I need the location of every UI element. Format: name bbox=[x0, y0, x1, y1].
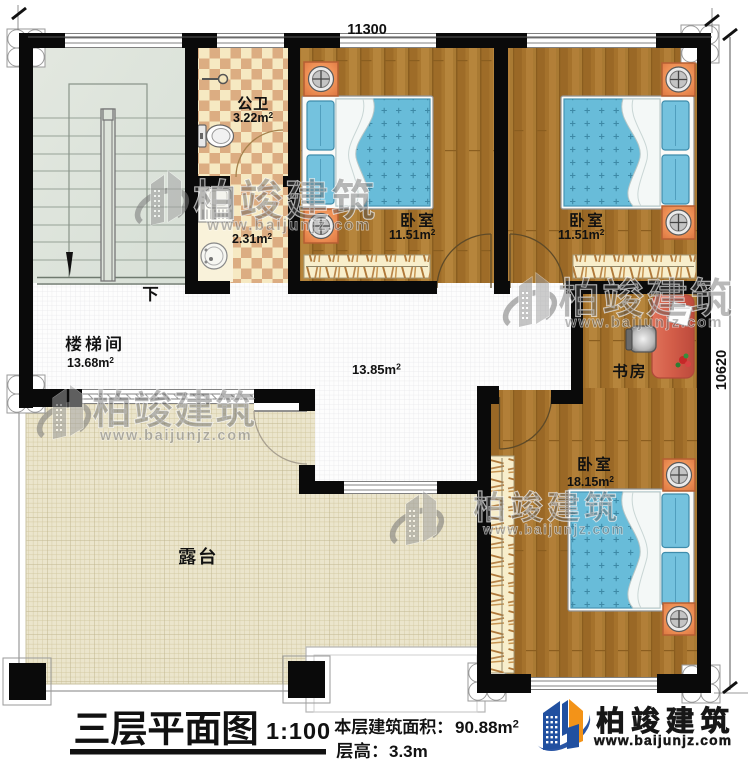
svg-text:13.68m2: 13.68m2 bbox=[67, 356, 114, 370]
svg-text:www.baijunjz.com: www.baijunjz.com bbox=[206, 217, 371, 234]
svg-text:11.51m2: 11.51m2 bbox=[389, 228, 436, 242]
svg-text:www.baijunjz.com: www.baijunjz.com bbox=[593, 733, 732, 748]
svg-text:1:100: 1:100 bbox=[266, 718, 331, 744]
svg-text:10620: 10620 bbox=[714, 350, 730, 390]
svg-text:www.baijunjz.com: www.baijunjz.com bbox=[564, 314, 723, 331]
svg-text:3.22m2: 3.22m2 bbox=[233, 111, 273, 125]
svg-text:3.3m: 3.3m bbox=[389, 742, 428, 761]
svg-text:11.51m2: 11.51m2 bbox=[558, 228, 605, 242]
svg-text:13.85m2: 13.85m2 bbox=[352, 362, 401, 377]
svg-text:90.88m2: 90.88m2 bbox=[455, 718, 519, 737]
svg-text:18.15m2: 18.15m2 bbox=[567, 475, 614, 489]
svg-text:www.baijunjz.com: www.baijunjz.com bbox=[482, 522, 625, 537]
svg-text:2.31m2: 2.31m2 bbox=[232, 232, 272, 246]
svg-text:www.baijunjz.com: www.baijunjz.com bbox=[99, 428, 252, 444]
svg-text:11300: 11300 bbox=[347, 22, 387, 38]
